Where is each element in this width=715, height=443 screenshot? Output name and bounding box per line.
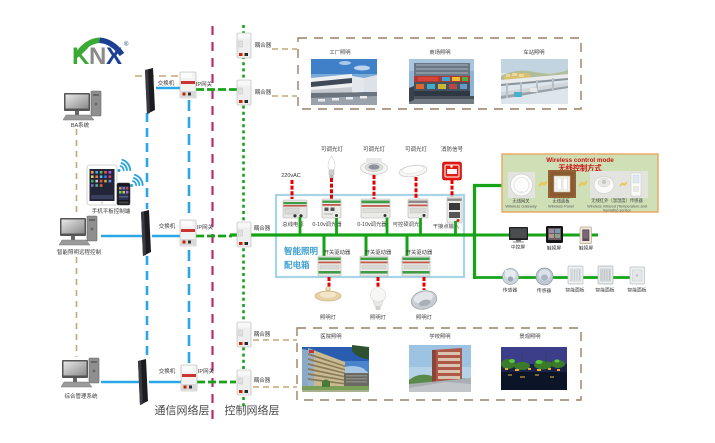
svg-text:Wireless Panel: Wireless Panel <box>548 204 574 209</box>
svg-text:开关驱动器: 开关驱动器 <box>406 248 433 256</box>
svg-text:照明灯: 照明灯 <box>320 313 337 321</box>
svg-text:IP网关: IP网关 <box>196 80 213 88</box>
svg-text:耦合器: 耦合器 <box>255 41 272 49</box>
svg-text:220vAC: 220vAC <box>281 173 301 179</box>
svg-text:通信网络层: 通信网络层 <box>155 403 210 417</box>
svg-text:控制网络层: 控制网络层 <box>225 403 280 417</box>
svg-text:K: K <box>72 43 90 70</box>
svg-text:耦合器: 耦合器 <box>254 224 271 232</box>
svg-text:手机平板控制端: 手机平板控制端 <box>92 207 131 215</box>
svg-text:无线红外（温湿度）传感器: 无线红外（温湿度）传感器 <box>591 197 643 204</box>
svg-text:交换机: 交换机 <box>159 222 176 230</box>
svg-text:开关驱动器: 开关驱动器 <box>324 248 351 256</box>
svg-text:触摸屏: 触摸屏 <box>547 245 562 252</box>
svg-text:学校照明: 学校照明 <box>429 332 450 340</box>
svg-text:医院照明: 医院照明 <box>320 332 341 340</box>
svg-text:工厂照明: 工厂照明 <box>329 49 350 56</box>
svg-text:传感器: 传感器 <box>503 287 518 294</box>
svg-text:交换机: 交换机 <box>159 367 176 375</box>
svg-text:综合管理系统: 综合管理系统 <box>64 392 98 400</box>
svg-text:可调光灯: 可调光灯 <box>321 145 344 153</box>
svg-text:耦合器: 耦合器 <box>255 88 272 96</box>
svg-text:消防信号: 消防信号 <box>441 145 464 153</box>
svg-text:配电箱: 配电箱 <box>284 260 310 270</box>
svg-text:X: X <box>106 43 122 70</box>
svg-text:智能面板: 智能面板 <box>595 287 614 294</box>
svg-text:可调光灯: 可调光灯 <box>405 145 428 153</box>
svg-text:触摸屏: 触摸屏 <box>579 245 594 252</box>
svg-text:IP网关: IP网关 <box>198 367 215 375</box>
svg-text:®: ® <box>124 41 129 48</box>
svg-text:耦合器: 耦合器 <box>254 330 271 338</box>
svg-text:可调光灯: 可调光灯 <box>363 145 386 153</box>
svg-text:智能照明: 智能照明 <box>283 246 319 256</box>
svg-text:BA系统: BA系统 <box>71 121 90 129</box>
svg-text:商场照明: 商场照明 <box>429 48 450 56</box>
svg-text:交换机: 交换机 <box>158 79 175 87</box>
svg-text:景观照明: 景观照明 <box>519 333 540 340</box>
svg-text:N: N <box>89 43 106 70</box>
svg-text:开关驱动器: 开关驱动器 <box>365 248 392 256</box>
svg-text:IP网关: IP网关 <box>197 223 214 231</box>
svg-text:智能面板: 智能面板 <box>565 287 584 294</box>
svg-text:车站照明: 车站照明 <box>523 48 544 56</box>
svg-text:照明灯: 照明灯 <box>416 313 433 321</box>
svg-text:照明灯: 照明灯 <box>370 313 387 321</box>
svg-text:0-10v调光器: 0-10v调光器 <box>357 220 387 228</box>
svg-text:Wireless Gateway: Wireless Gateway <box>505 204 536 209</box>
svg-text:humidity) sensor: humidity) sensor <box>603 209 632 213</box>
svg-text:智能面板: 智能面板 <box>627 287 646 294</box>
svg-text:耦合器: 耦合器 <box>254 376 271 384</box>
svg-text:可控硕调光: 可控硕调光 <box>393 220 420 228</box>
svg-text:传感器: 传感器 <box>537 287 552 294</box>
svg-text:中控屏: 中控屏 <box>511 244 526 251</box>
svg-text:智能照明远程控制: 智能照明远程控制 <box>57 248 102 256</box>
